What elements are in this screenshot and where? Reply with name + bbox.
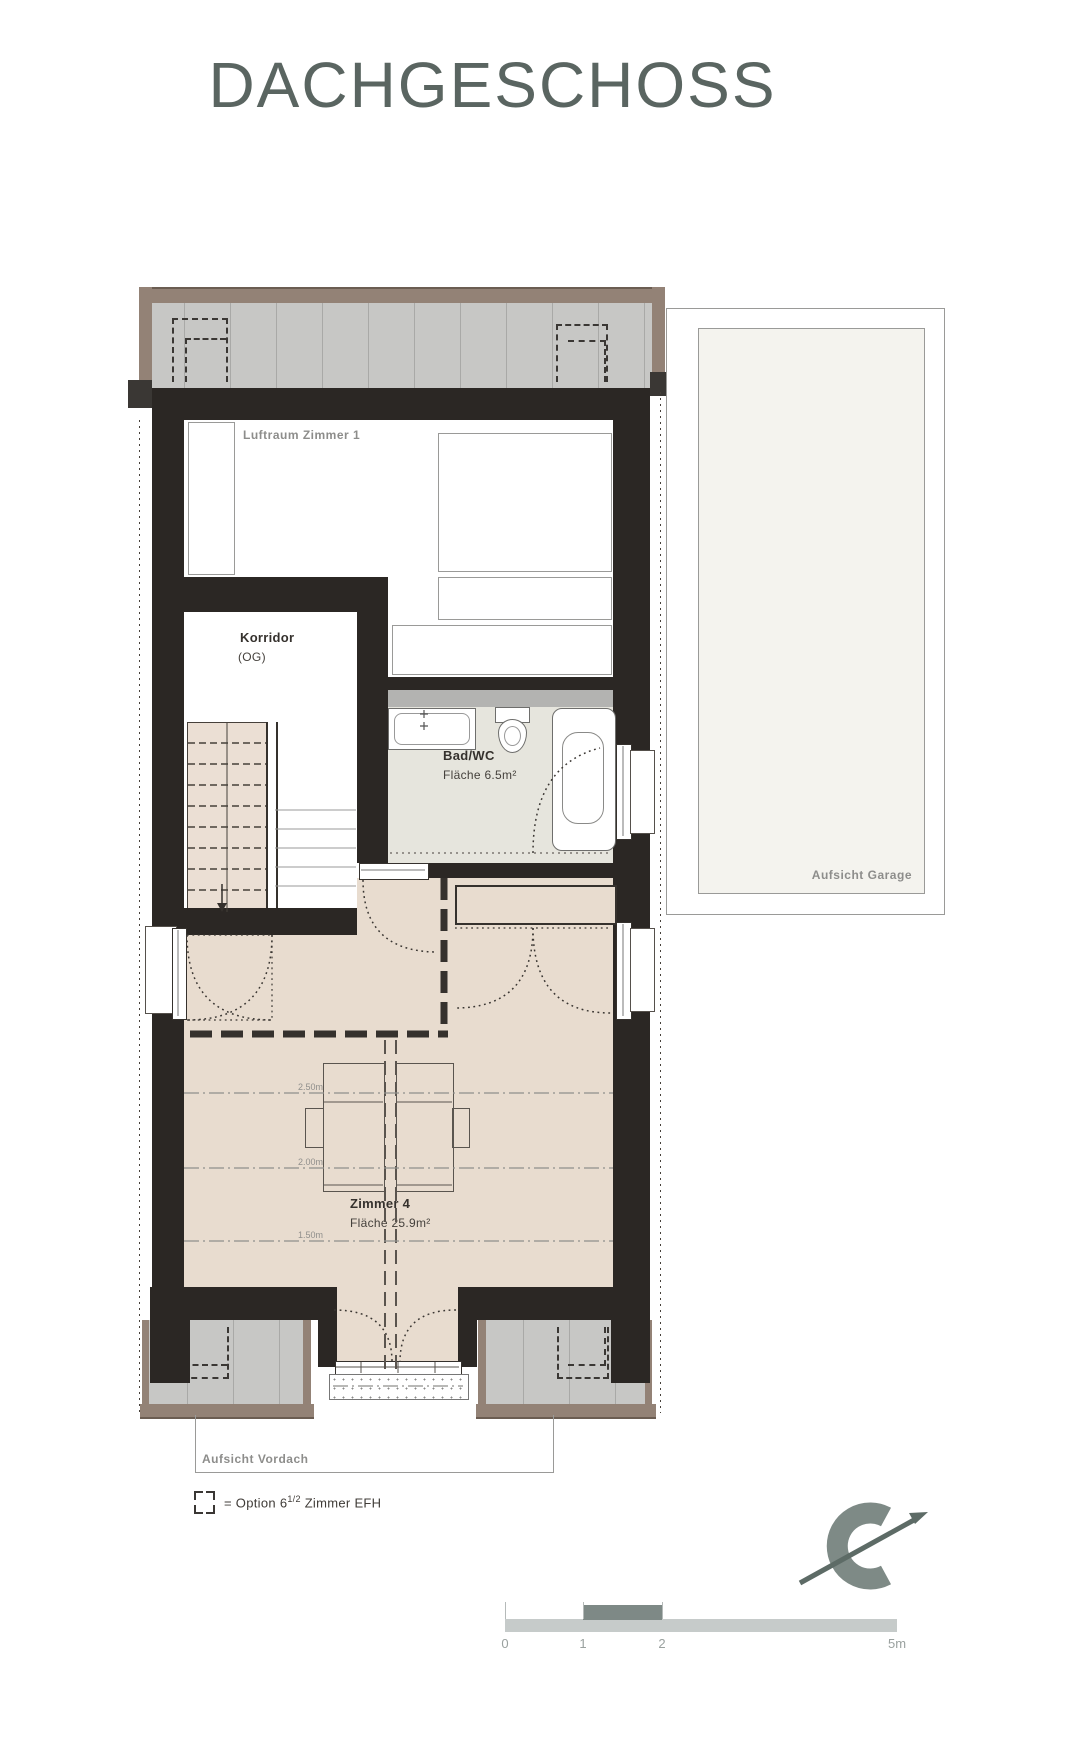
roof-band-top [139,287,665,388]
wall-east [613,420,650,1287]
legend-corner [194,1491,203,1500]
dormer-edge [303,1320,311,1405]
bed-right [396,1063,454,1192]
nightstand-left [305,1108,324,1148]
bath-counter [388,690,613,707]
room-label-luftraum: Luftraum Zimmer 1 [243,428,360,442]
wall-north [152,388,650,420]
bed-left [323,1063,385,1192]
scale-tick [662,1602,663,1619]
stair-upper-flight [187,722,269,914]
garage-outline-inner [698,328,925,894]
room-label-zimmer4: Zimmer 4 [350,1196,410,1211]
wall-korridor-east [357,612,388,863]
legend-text: = Option 61/2 Zimmer EFH [224,1494,381,1510]
room-area-bad: Fläche 6.5m² [443,768,517,782]
legend-corner [194,1505,203,1514]
roof-eave-left [139,287,152,388]
north-arrow-icon [780,1493,940,1603]
vordach-label: Aufsicht Vordach [202,1452,308,1466]
stair-railing [266,722,278,912]
window-dormer-sill [329,1374,469,1400]
toilet-bowl-inner [504,726,521,746]
room-area-zimmer4: Fläche 25.9m² [350,1216,431,1230]
vordach-leader-box: Aufsicht Vordach [195,1415,554,1473]
wall-corner-se [611,1287,650,1383]
scale-label-2: 2 [645,1636,679,1651]
wall-bay-right [458,1287,477,1367]
wall-cap-right [650,372,666,396]
page-title: DACHGESCHOSS [0,48,985,122]
door-threshold [359,863,429,880]
floor-plan-canvas: DACHGESCHOSS Aufsicht Garage Aufsicht Vo… [0,0,1083,1741]
zimmer4-bay-floor [337,1287,460,1361]
height-line-label-250: 2.50m [253,1082,323,1092]
scale-label-1: 1 [566,1636,600,1651]
option-dash-mark [568,1327,606,1366]
wall-west [152,420,184,1287]
stair-treads-lower [275,810,356,886]
legend-option-symbol [194,1491,215,1514]
bathtub-basin [562,732,604,824]
nightstand-right [452,1108,470,1148]
legend-corner [206,1491,215,1500]
option-dash-mark [568,340,606,382]
scale-bar-segment [583,1605,662,1620]
dormer-edge [478,1320,486,1405]
wall-bath-south [427,863,613,878]
scale-tick [583,1602,584,1619]
option-dash-mark [185,338,226,382]
garage-label: Aufsicht Garage [700,868,912,882]
window-east-sill [630,928,655,1012]
legend-prefix: = Option 6 [224,1495,287,1510]
room-label-bad: Bad/WC [443,748,495,763]
wall-cap-left [128,380,152,408]
wall-bay-left [318,1287,337,1367]
legend-corner [206,1505,215,1514]
wardrobe [455,885,617,925]
wall-corner-sw [150,1287,190,1383]
scale-label-0: 0 [488,1636,522,1651]
scale-bar [505,1619,897,1632]
void-furniture-rect [392,625,612,675]
room-label-korridor-floor: (OG) [238,650,266,664]
void-furniture-rect [438,433,612,572]
void-furniture-rect [188,422,235,575]
height-line-label-150: 1.50m [253,1230,323,1240]
roof-eave-top [139,287,665,303]
legend-suffix: Zimmer EFH [301,1495,382,1510]
wall-bath-north [388,677,613,690]
dormer-edge [142,1320,149,1405]
height-line-label-200: 2.00m [253,1157,323,1167]
scale-tick [505,1602,506,1619]
legend-fraction: 1/2 [287,1494,300,1504]
scale-label-5m: 5m [880,1636,914,1651]
wall-korridor-north [184,577,388,612]
window-west [172,928,187,1020]
void-furniture-rect [438,577,612,620]
window-bath-sill [630,750,655,834]
vanity-basin [394,713,470,745]
room-label-korridor: Korridor [240,630,294,645]
